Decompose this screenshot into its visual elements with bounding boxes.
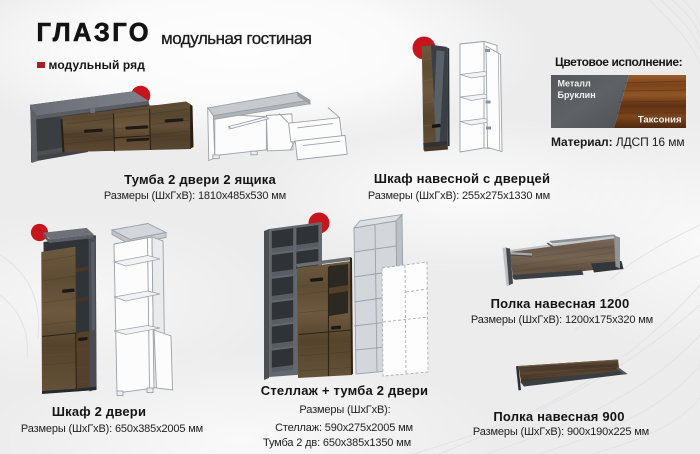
svg-text:Бруклин: Бруклин [558,90,596,100]
svg-text:Металл: Металл [558,79,592,89]
svg-text:Таксония: Таксония [638,115,682,126]
